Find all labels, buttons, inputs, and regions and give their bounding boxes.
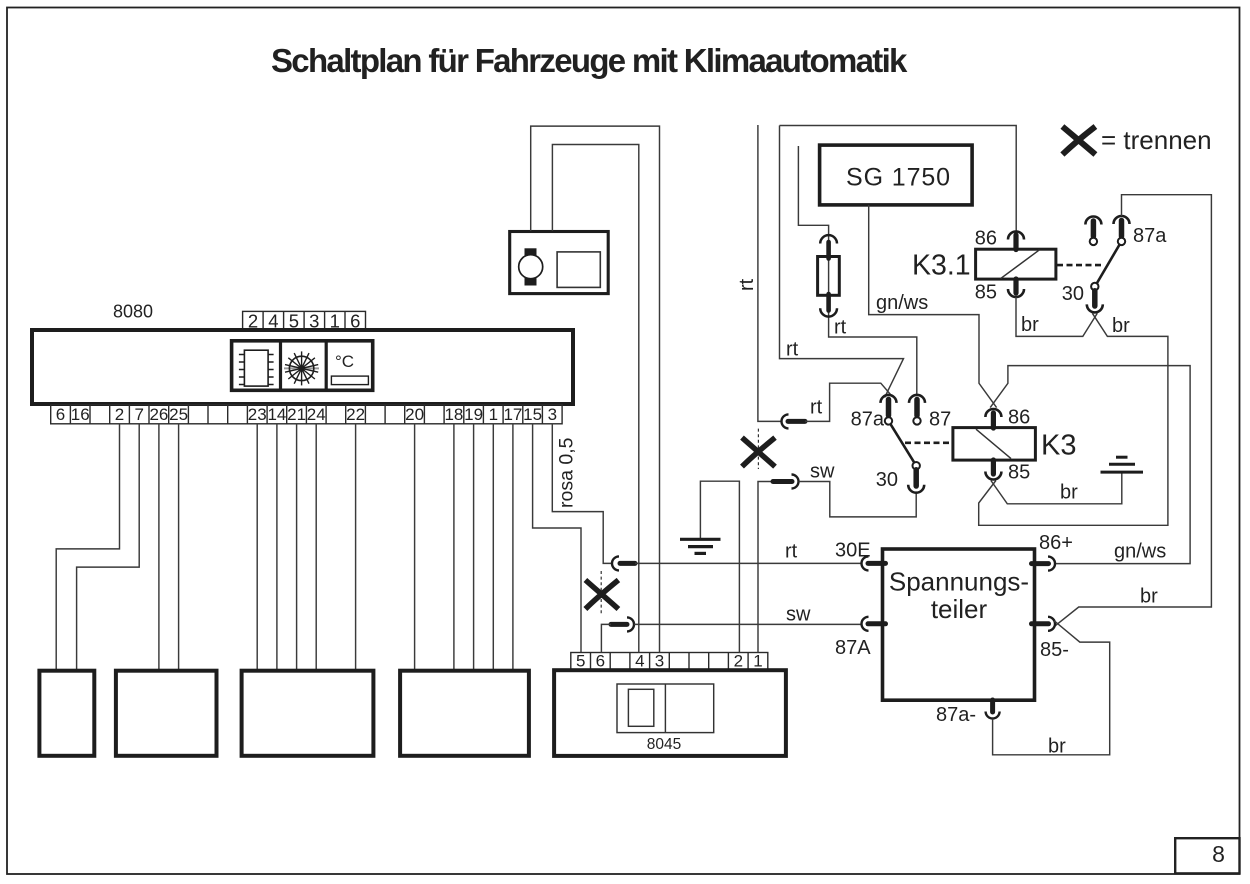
svg-text:86: 86 [1008,407,1030,429]
svg-text:sw: sw [810,461,835,483]
svg-text:2: 2 [734,652,743,671]
svg-text:25: 25 [169,405,188,424]
svg-text:rt: rt [810,397,823,419]
svg-text:85: 85 [975,282,997,304]
svg-text:8080: 8080 [113,302,153,322]
svg-text:17: 17 [503,405,522,424]
svg-text:SG 1750: SG 1750 [846,164,951,192]
svg-text:20: 20 [405,405,424,424]
svg-text:teiler: teiler [931,594,988,624]
svg-text:rt: rt [786,339,799,361]
svg-text:14: 14 [267,405,286,424]
svg-text:K3.1: K3.1 [912,250,971,282]
svg-text:87A: 87A [835,637,871,659]
svg-text:rt: rt [736,278,758,291]
svg-text:85: 85 [1008,462,1030,484]
svg-text:gn/ws: gn/ws [876,292,928,314]
svg-text:87a: 87a [1133,225,1167,247]
svg-text:8: 8 [1212,841,1225,867]
svg-text:30: 30 [876,469,898,491]
svg-text:sw: sw [786,604,811,626]
svg-text:Spannungs-: Spannungs- [889,567,1029,597]
svg-text:24: 24 [307,405,326,424]
svg-text:br: br [1112,315,1130,337]
svg-text:br: br [1140,586,1158,608]
svg-text:87a-: 87a- [936,704,976,726]
svg-text:rosa 0,5: rosa 0,5 [556,437,578,508]
svg-text:4: 4 [635,652,644,671]
svg-text:= trennen: = trennen [1101,125,1212,155]
svg-text:26: 26 [149,405,168,424]
svg-text:85-: 85- [1040,639,1069,661]
svg-text:3: 3 [548,405,557,424]
svg-text:K3: K3 [1041,430,1076,462]
svg-text:br: br [1021,314,1039,336]
svg-text:23: 23 [248,405,267,424]
svg-text:30E: 30E [835,540,871,562]
svg-text:1: 1 [489,405,498,424]
svg-text:18: 18 [444,405,463,424]
svg-text:30: 30 [1062,283,1084,305]
svg-text:16: 16 [71,405,90,424]
svg-text:22: 22 [346,405,365,424]
svg-text:1: 1 [753,652,762,671]
svg-text:Schaltplan für Fahrzeuge mit K: Schaltplan für Fahrzeuge mit Klimaautoma… [271,42,908,79]
svg-text:°C: °C [335,352,354,371]
svg-text:6: 6 [596,652,605,671]
svg-text:86+: 86+ [1039,532,1073,554]
svg-text:rt: rt [834,317,847,339]
svg-text:21: 21 [287,405,306,424]
svg-text:19: 19 [464,405,483,424]
svg-text:87: 87 [929,409,951,431]
svg-text:2: 2 [115,405,124,424]
svg-text:7: 7 [134,405,143,424]
svg-text:3: 3 [655,652,664,671]
svg-text:rt: rt [785,541,798,563]
svg-text:br: br [1048,736,1066,758]
svg-text:86: 86 [975,228,997,250]
svg-text:gn/ws: gn/ws [1114,541,1166,563]
svg-text:87a: 87a [851,409,885,431]
svg-text:15: 15 [523,405,542,424]
svg-text:br: br [1060,482,1078,504]
svg-text:6: 6 [56,405,65,424]
svg-text:8045: 8045 [647,736,681,753]
svg-text:5: 5 [576,652,585,671]
